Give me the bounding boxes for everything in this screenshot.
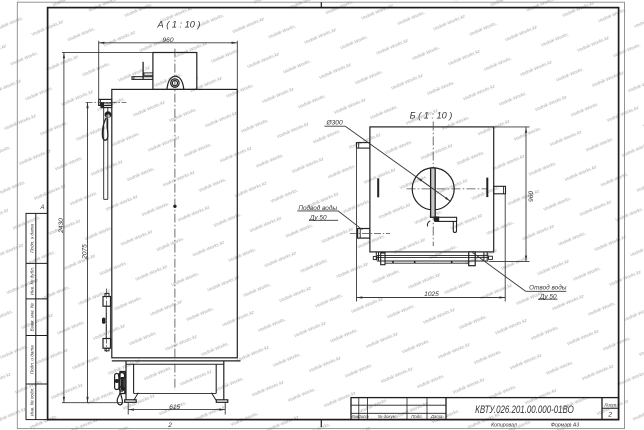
svg-text:Ø300: Ø300 — [326, 120, 343, 127]
svg-text:Дата: Дата — [430, 414, 443, 419]
svg-text:Формат А3: Формат А3 — [551, 422, 579, 428]
svg-text:960: 960 — [528, 191, 535, 202]
svg-text:2: 2 — [607, 412, 612, 419]
svg-text:1025: 1025 — [424, 291, 439, 298]
svg-text:Подп. и дата: Подп. и дата — [30, 224, 35, 253]
svg-text:960: 960 — [162, 37, 173, 44]
svg-text:2430: 2430 — [58, 218, 65, 234]
svg-text:Отвод воды: Отвод воды — [529, 284, 567, 292]
svg-text:Лист: Лист — [357, 414, 369, 419]
svg-text:№ докум.: № докум. — [378, 414, 397, 419]
svg-text:Подп. и дата: Подп. и дата — [30, 345, 35, 374]
svg-text:А: А — [39, 205, 44, 211]
svg-text:Б ( 1 : 10 ): Б ( 1 : 10 ) — [410, 111, 453, 121]
svg-text:2: 2 — [167, 422, 172, 429]
svg-text:А ( 1 : 10 ): А ( 1 : 10 ) — [157, 20, 201, 30]
svg-text:615: 615 — [169, 404, 180, 411]
svg-text:Взам. инв. №: Взам. инв. № — [30, 303, 35, 331]
svg-text:Инв. № подл.: Инв. № подл. — [30, 388, 35, 417]
svg-text:Инв. № дубл.: Инв. № дубл. — [30, 267, 35, 295]
svg-text:2075: 2075 — [82, 244, 89, 260]
svg-text:Подп.: Подп. — [411, 414, 422, 419]
svg-text:Лист: Лист — [603, 402, 616, 407]
svg-text:КВТУ.026.201.00.000-01ВО: КВТУ.026.201.00.000-01ВО — [475, 404, 574, 417]
svg-text:Копировал: Копировал — [491, 422, 517, 428]
